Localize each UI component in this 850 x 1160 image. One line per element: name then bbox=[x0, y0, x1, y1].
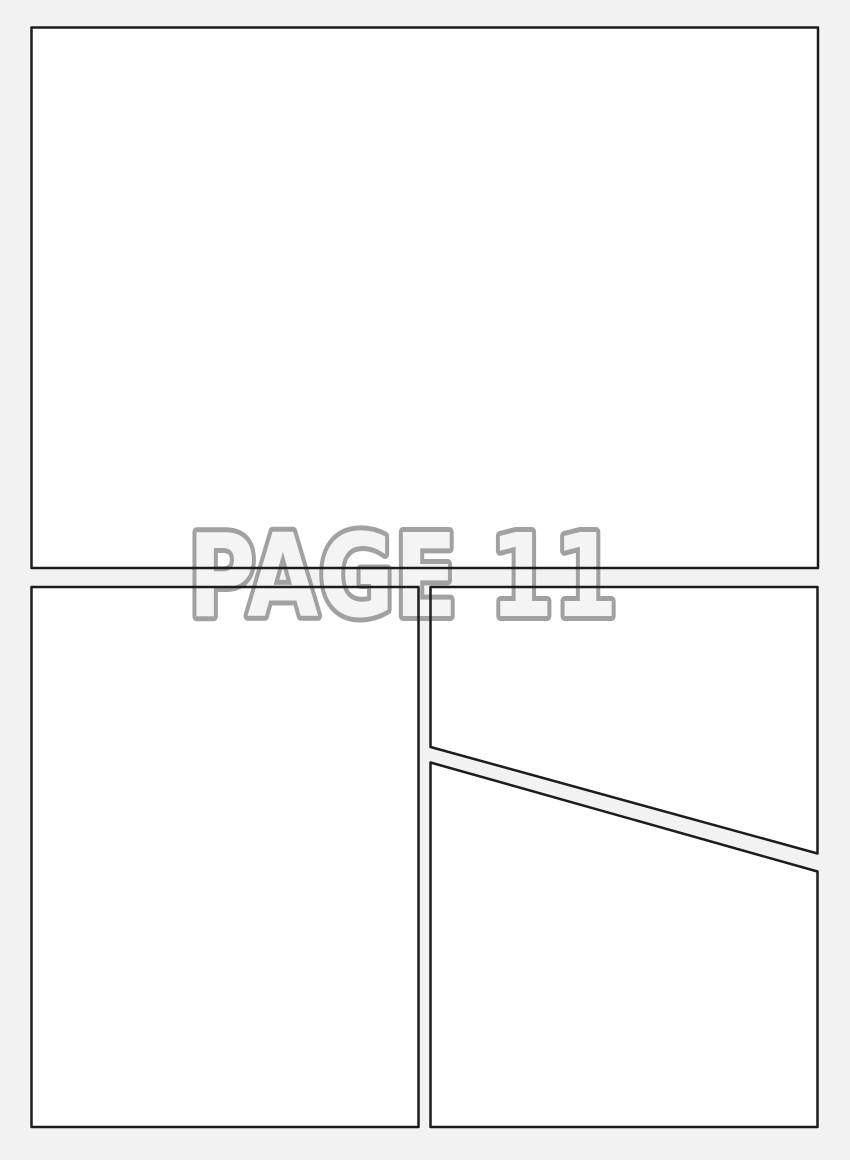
panel-1 bbox=[32, 28, 819, 569]
comic-page-canvas: PAGE 11 bbox=[0, 0, 850, 1160]
comic-page-template: PAGE 11 bbox=[0, 0, 850, 1160]
panel-2 bbox=[32, 587, 419, 1127]
page-number-label: PAGE 11 bbox=[188, 510, 618, 644]
